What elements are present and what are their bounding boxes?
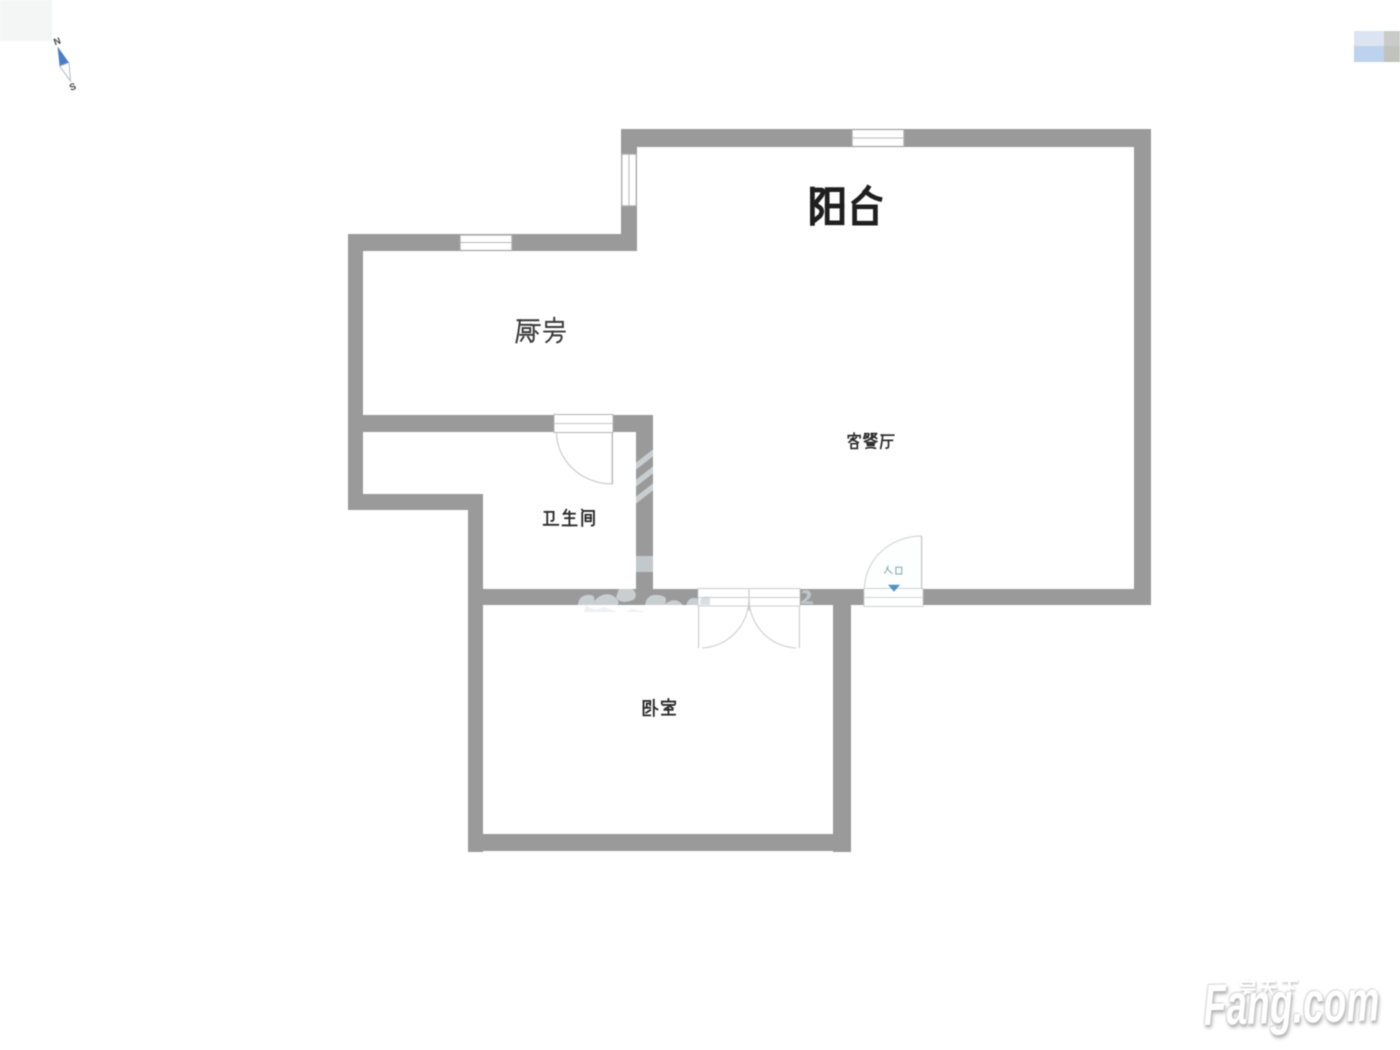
svg-text:Fang.com: Fang.com <box>1203 968 1381 1038</box>
